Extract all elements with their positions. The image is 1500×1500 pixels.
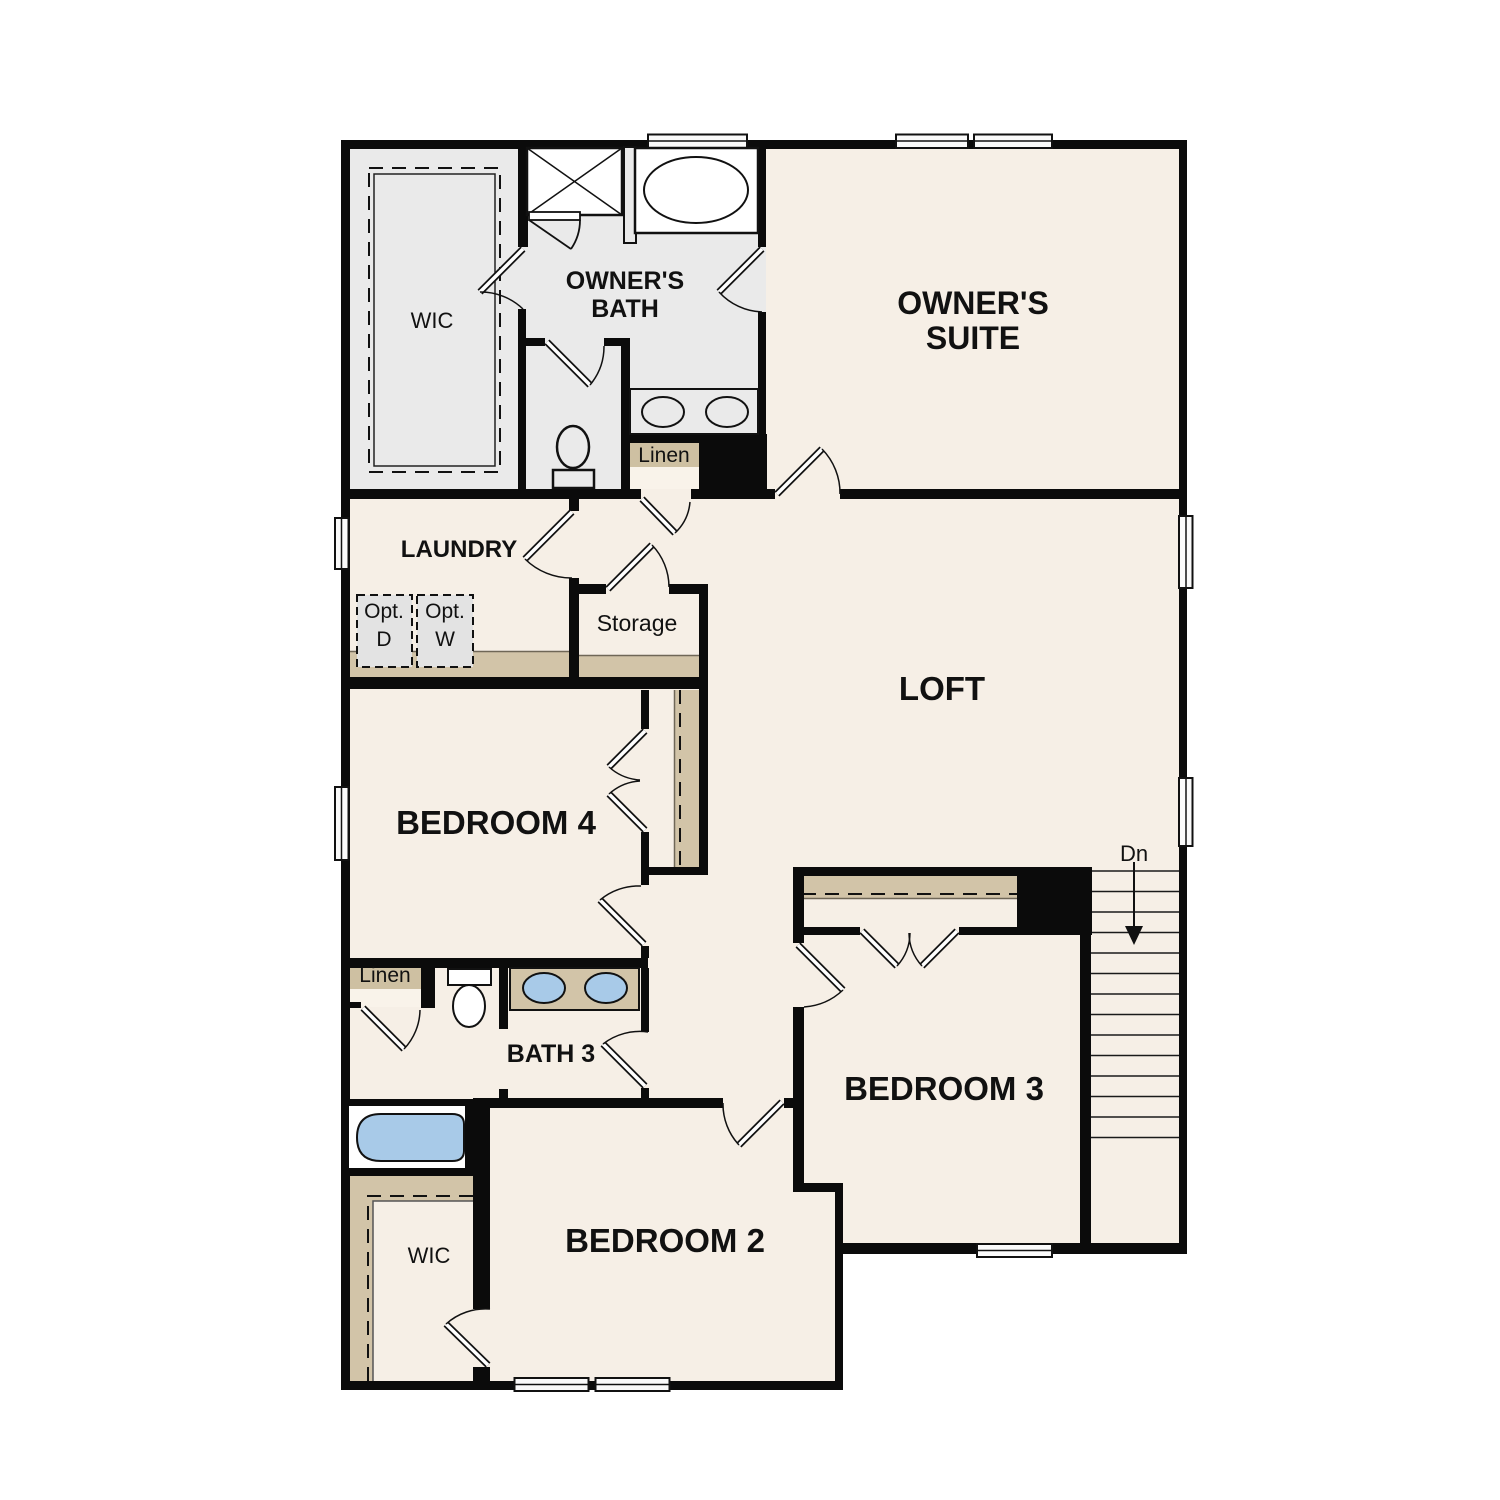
svg-text:LAUNDRY: LAUNDRY	[401, 536, 517, 563]
svg-text:Opt.: Opt.	[364, 600, 404, 623]
svg-text:Dn: Dn	[1120, 841, 1148, 866]
svg-text:BATH 3: BATH 3	[507, 1040, 595, 1068]
svg-text:WIC: WIC	[408, 1243, 451, 1268]
svg-text:WIC: WIC	[411, 308, 454, 333]
svg-text:BATH: BATH	[591, 295, 659, 323]
svg-text:W: W	[435, 628, 455, 651]
svg-text:Opt.: Opt.	[425, 600, 465, 623]
svg-text:OWNER'S: OWNER'S	[566, 267, 684, 295]
svg-text:OWNER'S: OWNER'S	[897, 285, 1049, 321]
svg-text:Linen: Linen	[359, 964, 410, 987]
svg-text:BEDROOM 2: BEDROOM 2	[565, 1222, 765, 1259]
svg-text:Linen: Linen	[638, 444, 689, 467]
svg-text:BEDROOM 3: BEDROOM 3	[844, 1070, 1044, 1107]
svg-text:LOFT: LOFT	[899, 670, 985, 707]
svg-text:D: D	[376, 628, 391, 651]
svg-text:BEDROOM 4: BEDROOM 4	[396, 804, 597, 841]
svg-text:Storage: Storage	[597, 610, 678, 636]
svg-text:SUITE: SUITE	[926, 320, 1020, 356]
